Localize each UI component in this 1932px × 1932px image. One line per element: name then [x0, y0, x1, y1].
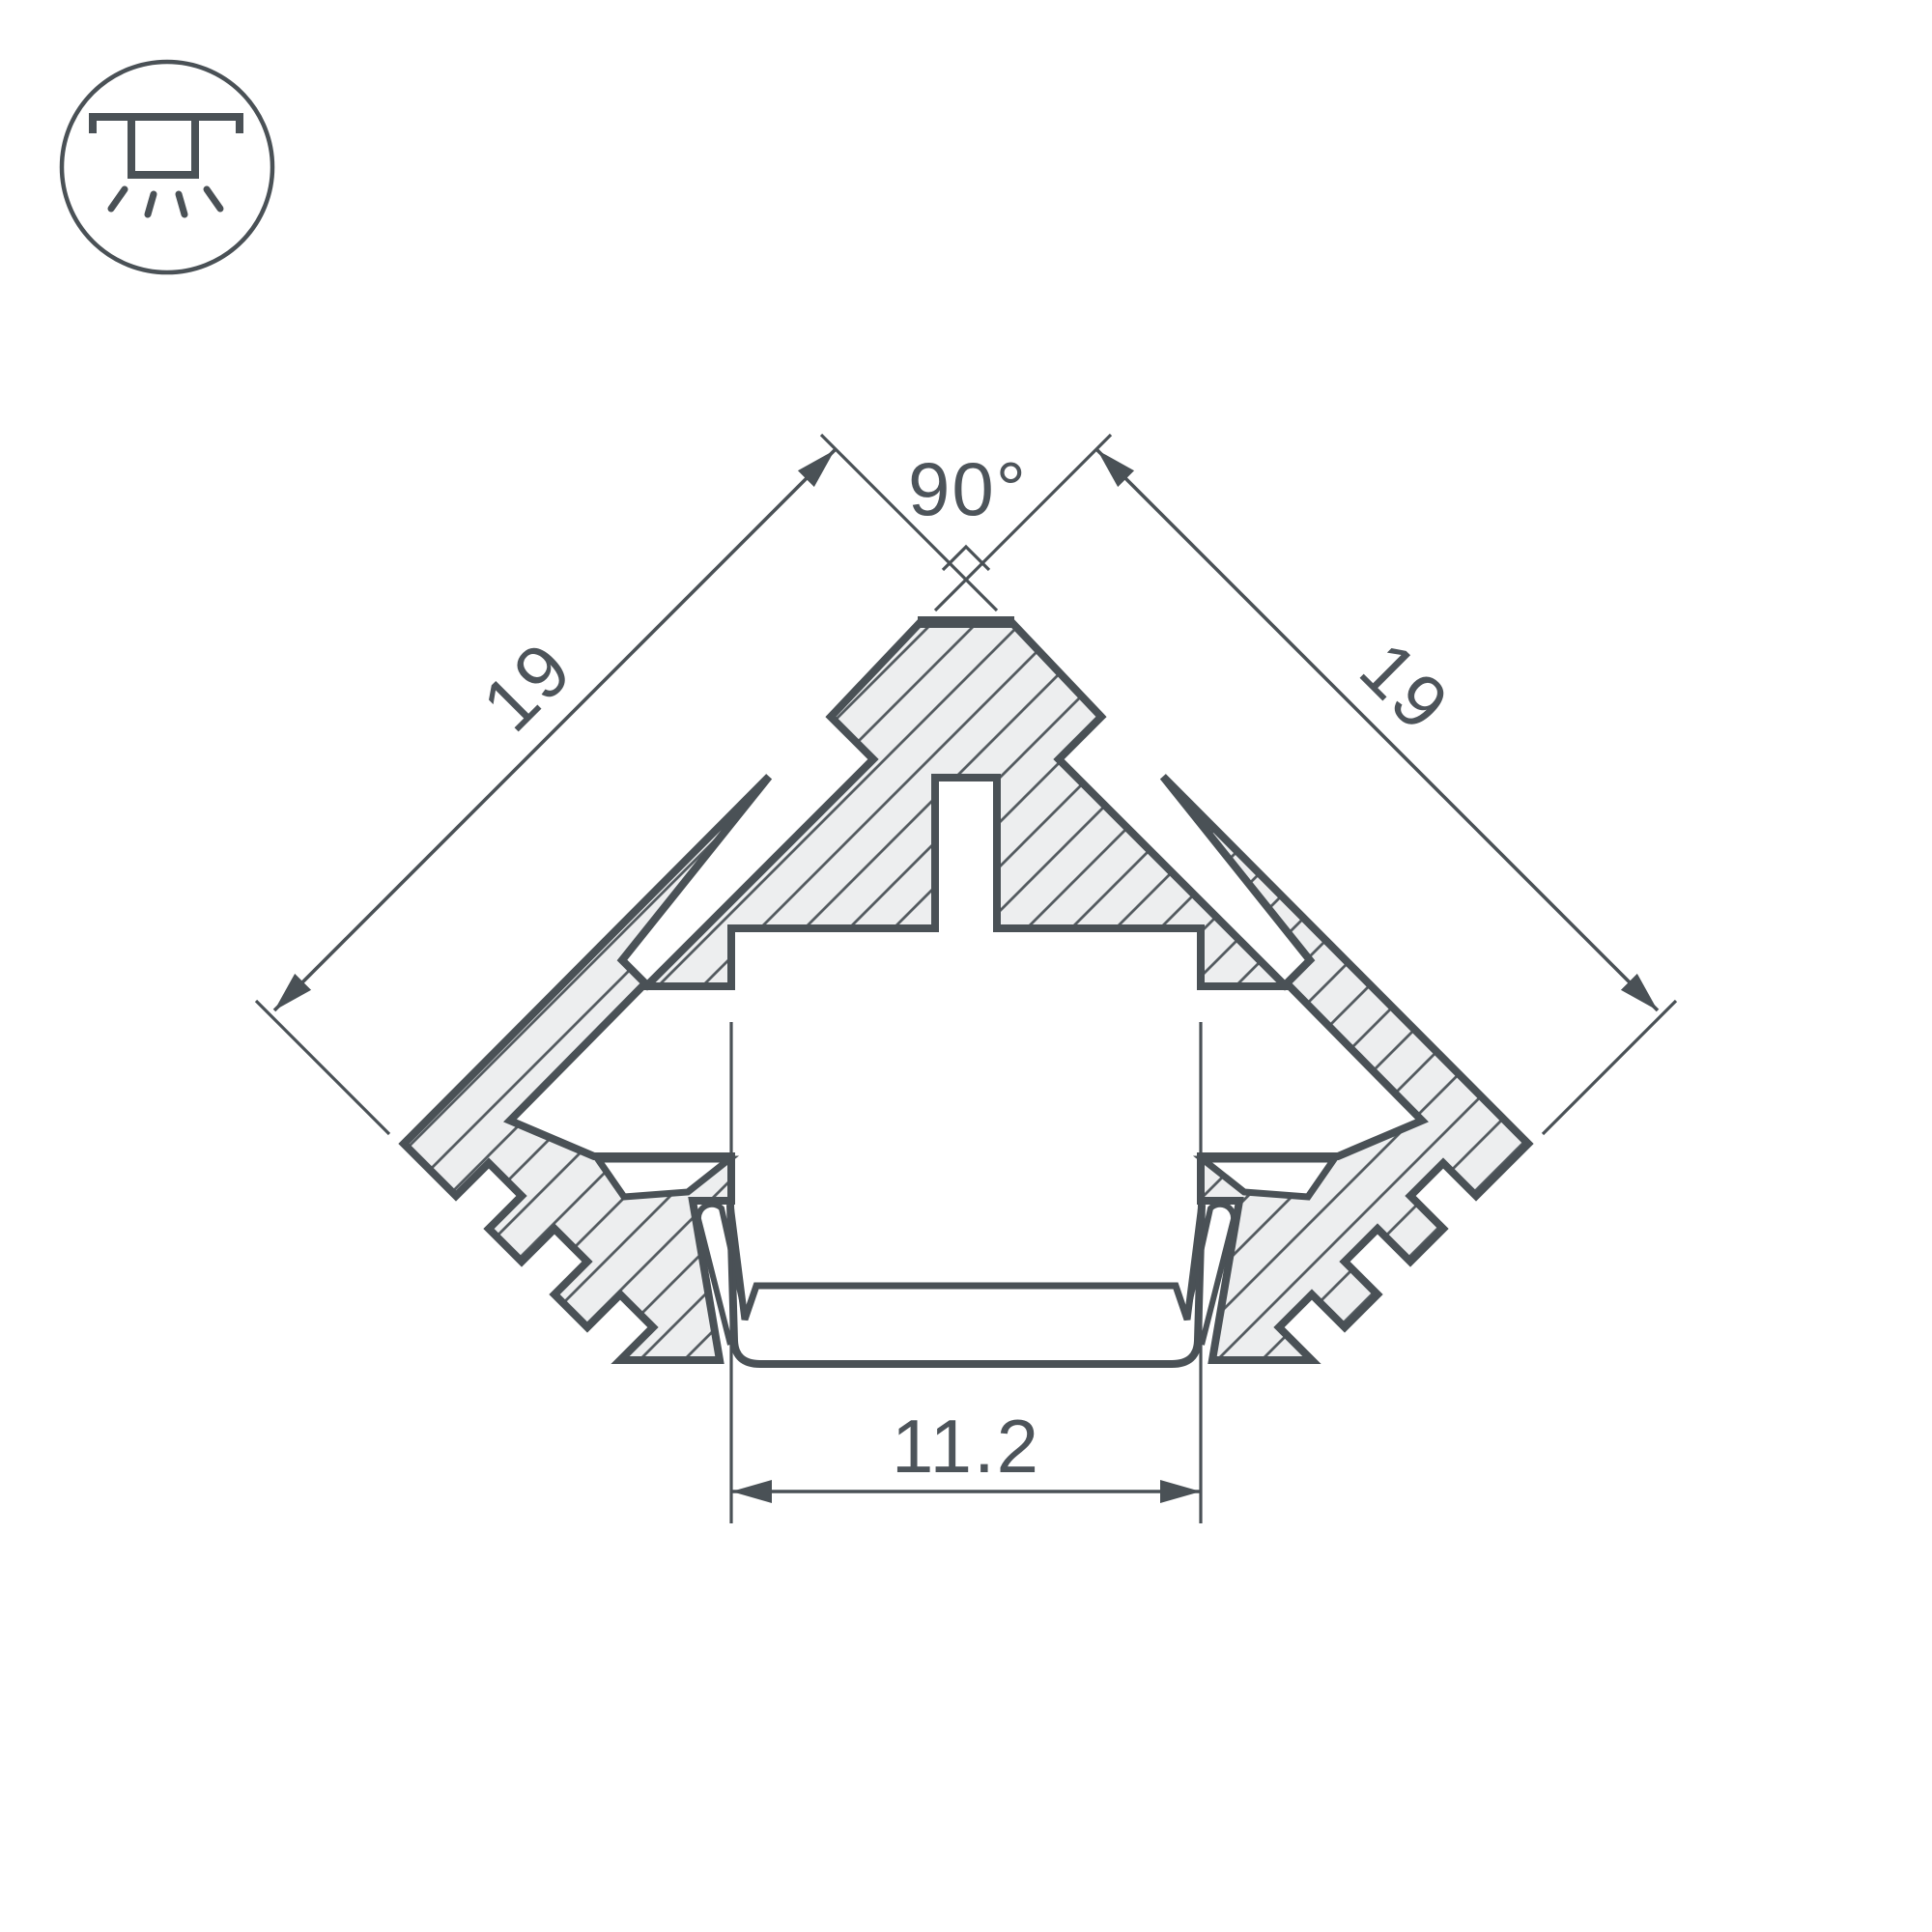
profile-body-hatch-outline: [404, 623, 1528, 1360]
diffuser-cover-assembly: [698, 1205, 1234, 1364]
side-length-label-right: 19: [1344, 625, 1465, 747]
angle-label: 90°: [908, 446, 1028, 531]
apex-vertex-caret: [943, 547, 989, 570]
aluminum-profile-body: [404, 622, 1528, 1360]
icon-light-rays: [111, 189, 220, 214]
side-length-label-left: 19: [466, 625, 587, 747]
drawing-canvas: 90° 19 19 11.2: [0, 0, 1932, 1932]
dimension-annotations: 90° 19 19 11.2: [256, 435, 1676, 1523]
extension-line-corner-right: [1543, 1001, 1676, 1134]
bottom-width-label: 11.2: [892, 1404, 1040, 1489]
profile-cross-section-diagram: 90° 19 19 11.2: [0, 0, 1932, 1932]
extension-line-corner-left: [256, 1001, 389, 1134]
icon-circle: [62, 62, 272, 272]
icon-lamp-box: [131, 117, 195, 175]
diffuser-top-surface: [730, 1205, 1202, 1320]
icon-ceiling-line: [93, 117, 240, 133]
recessed-ceiling-light-icon: [62, 62, 272, 272]
